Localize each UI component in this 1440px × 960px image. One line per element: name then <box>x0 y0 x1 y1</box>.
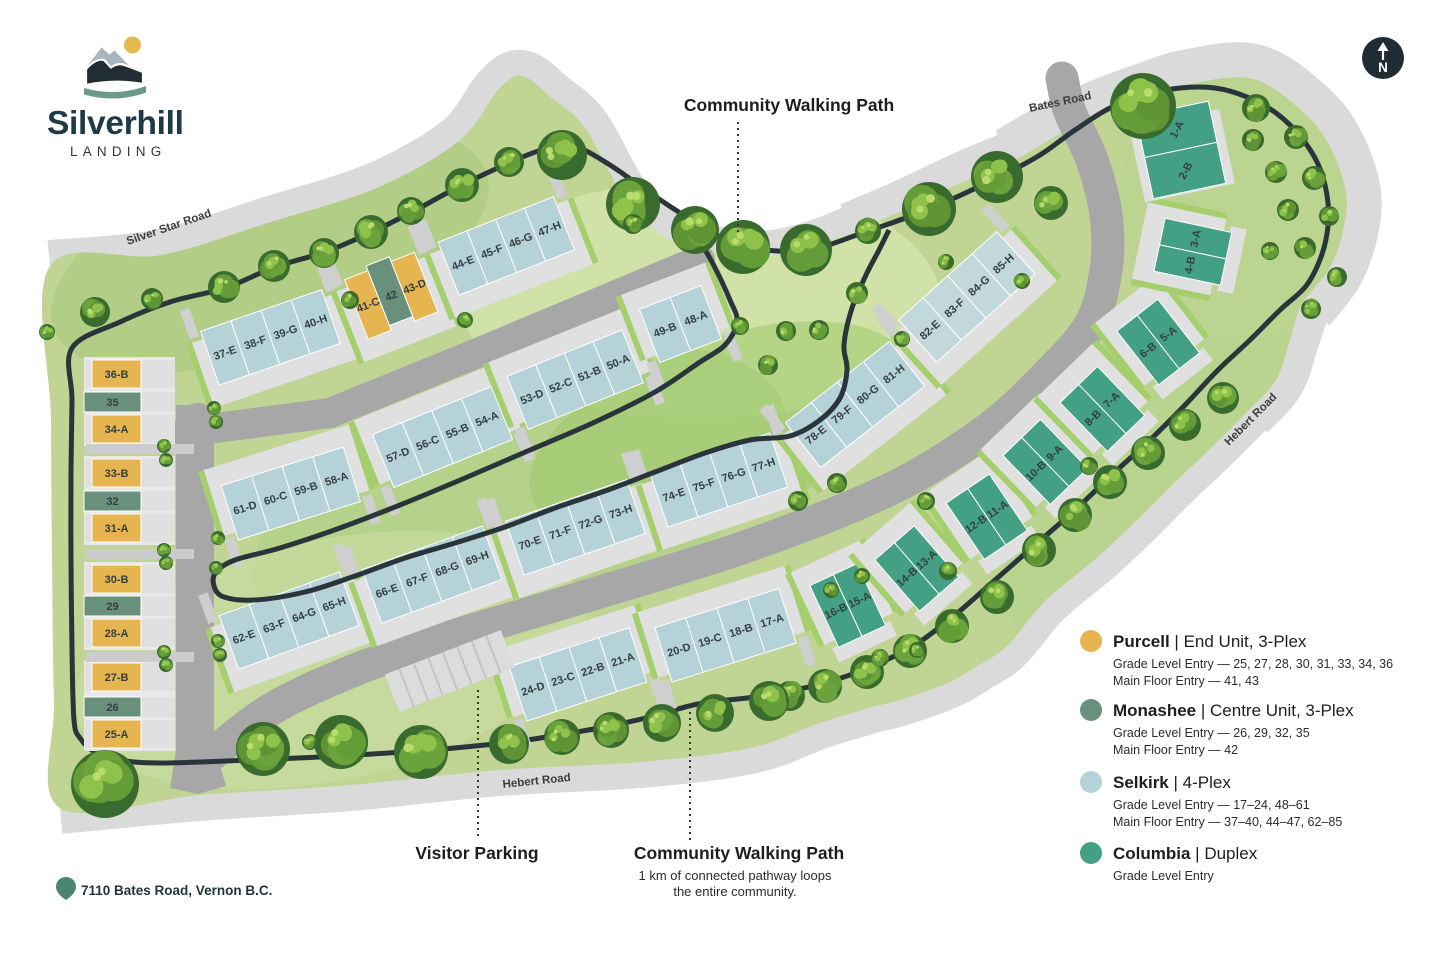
svg-text:Grade Level Entry — 25, 27, 28: Grade Level Entry — 25, 27, 28, 30, 31, … <box>1113 657 1393 671</box>
svg-text:Main Floor Entry — 41, 43: Main Floor Entry — 41, 43 <box>1113 674 1259 688</box>
svg-text:Main Floor Entry — 37–40, 44–4: Main Floor Entry — 37–40, 44–47, 62–85 <box>1113 815 1342 829</box>
svg-text:30-B: 30-B <box>105 574 129 586</box>
svg-text:35: 35 <box>106 397 118 409</box>
svg-text:27-B: 27-B <box>105 672 129 684</box>
svg-text:Columbia | Duplex: Columbia | Duplex <box>1113 844 1258 863</box>
svg-text:36-B: 36-B <box>105 369 129 381</box>
svg-text:Silverhill: Silverhill <box>47 105 184 142</box>
svg-text:25-A: 25-A <box>105 729 129 741</box>
svg-text:Community Walking Path: Community Walking Path <box>684 95 894 115</box>
svg-text:Grade Level Entry — 17–24, 48–: Grade Level Entry — 17–24, 48–61 <box>1113 798 1310 812</box>
svg-text:31-A: 31-A <box>105 523 129 535</box>
svg-text:the entire community.: the entire community. <box>673 884 796 899</box>
svg-text:Grade Level Entry — 26, 29, 32: Grade Level Entry — 26, 29, 32, 35 <box>1113 726 1310 740</box>
svg-text:33-B: 33-B <box>105 468 129 480</box>
svg-text:7110 Bates Road, Vernon B.C.: 7110 Bates Road, Vernon B.C. <box>81 883 272 898</box>
svg-text:N: N <box>1378 60 1388 75</box>
svg-text:1 km of connected pathway loop: 1 km of connected pathway loops <box>639 868 832 883</box>
svg-text:28-A: 28-A <box>105 628 129 640</box>
svg-text:Visitor Parking: Visitor Parking <box>415 843 538 863</box>
svg-text:LANDING: LANDING <box>70 144 166 159</box>
svg-text:Main Floor Entry — 42: Main Floor Entry — 42 <box>1113 743 1238 757</box>
svg-text:Purcell | End Unit, 3-Plex: Purcell | End Unit, 3-Plex <box>1113 632 1307 651</box>
svg-text:29: 29 <box>106 601 118 613</box>
svg-text:32: 32 <box>106 496 118 508</box>
svg-text:Monashee | Centre Unit, 3-Plex: Monashee | Centre Unit, 3-Plex <box>1113 701 1354 720</box>
svg-text:34-A: 34-A <box>105 424 129 436</box>
svg-text:Selkirk | 4-Plex: Selkirk | 4-Plex <box>1113 773 1231 792</box>
svg-text:Community Walking Path: Community Walking Path <box>634 843 844 863</box>
svg-text:Grade Level Entry: Grade Level Entry <box>1113 869 1214 883</box>
svg-text:26: 26 <box>106 702 118 714</box>
